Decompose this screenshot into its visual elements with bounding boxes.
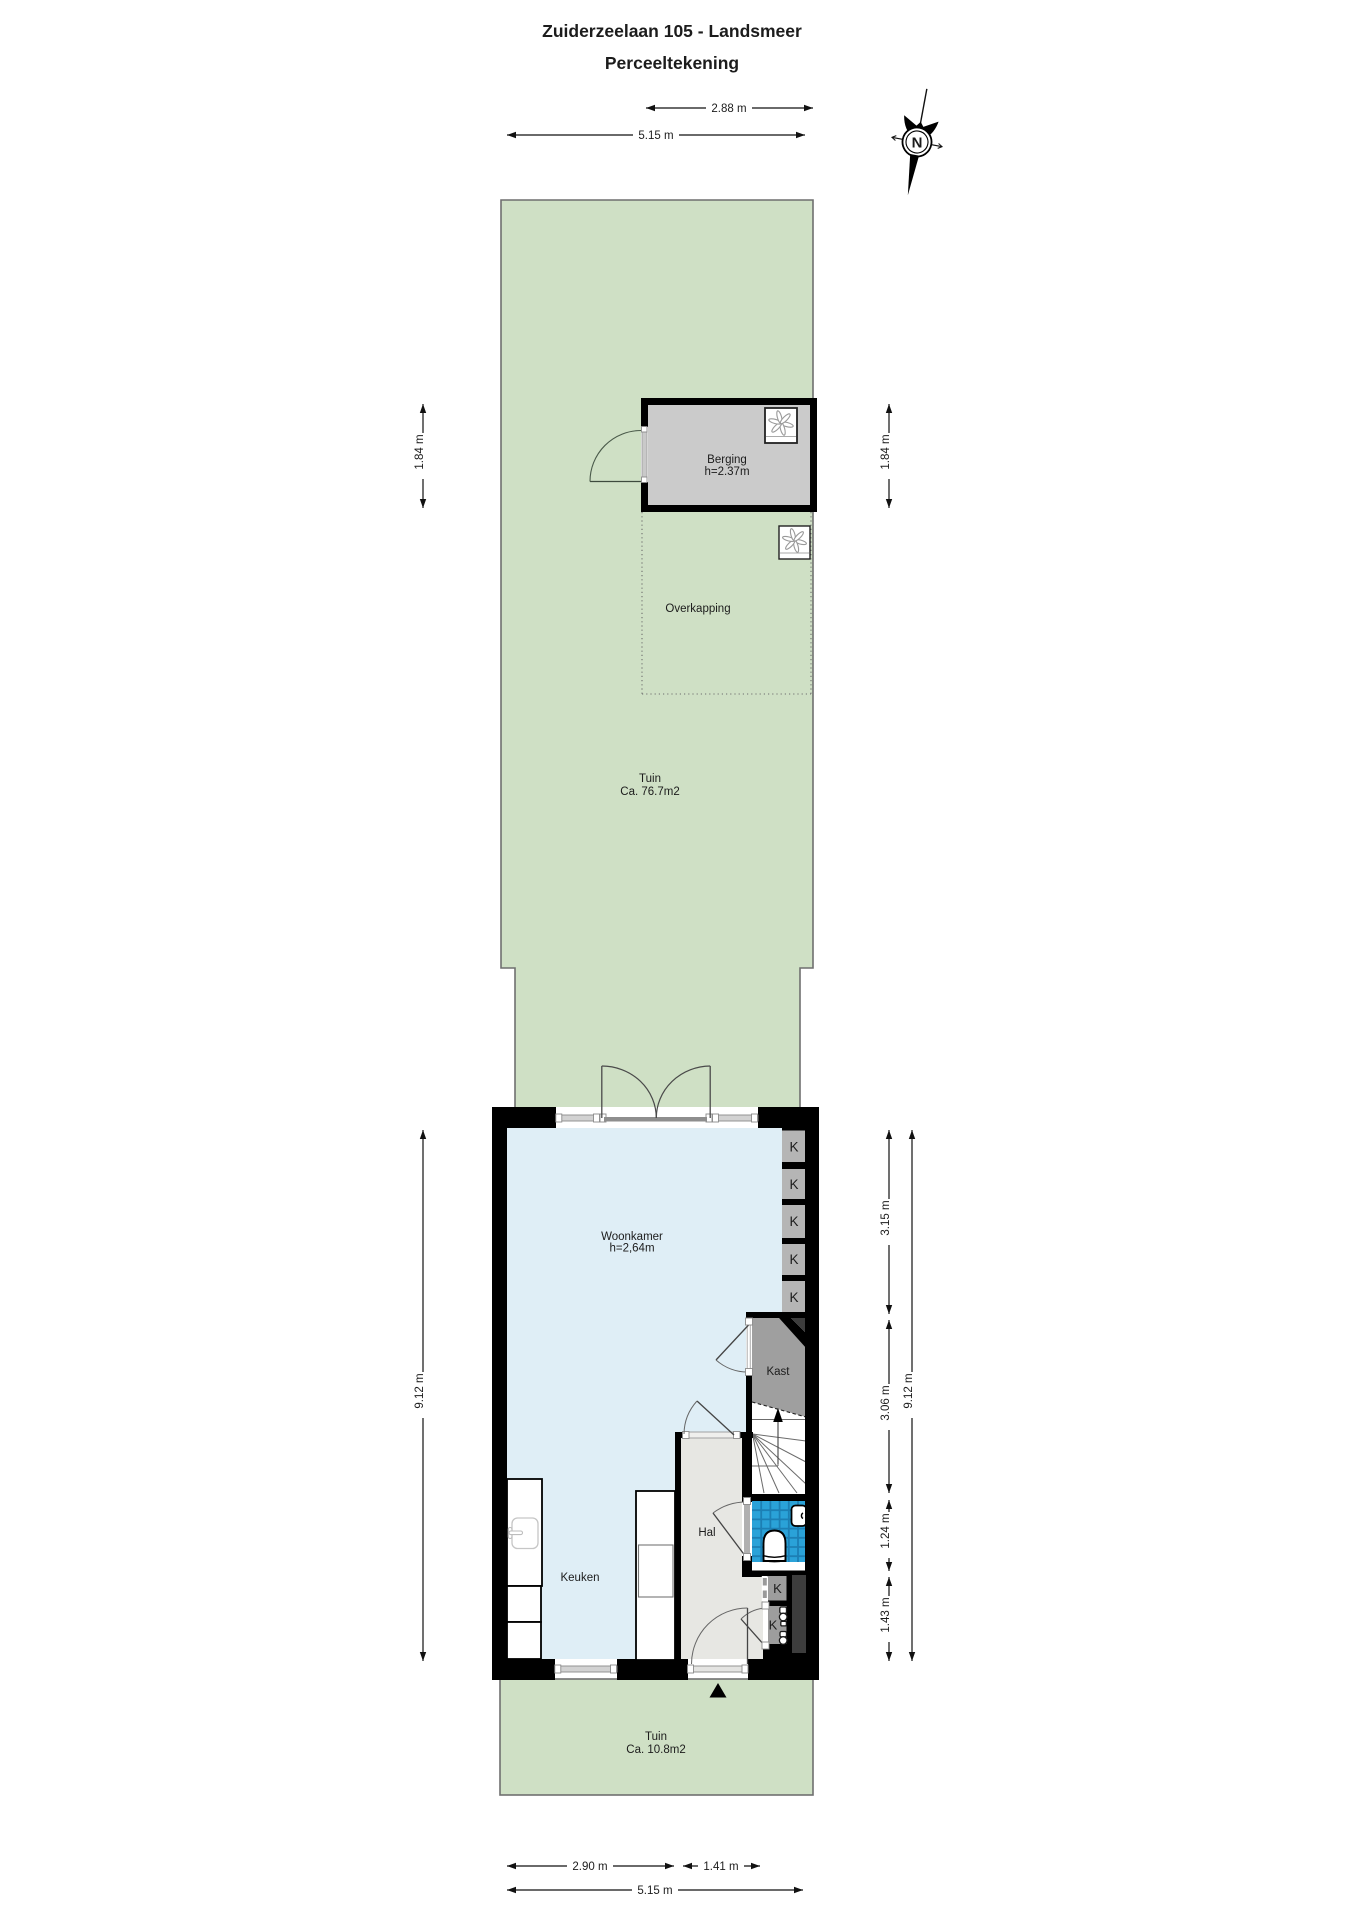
svg-text:1.84 m: 1.84 m [414, 434, 426, 469]
svg-text:3.06 m: 3.06 m [880, 1385, 892, 1420]
svg-text:Kast: Kast [766, 1366, 790, 1378]
svg-text:K: K [789, 1252, 798, 1267]
svg-text:Ca. 76.7m2: Ca. 76.7m2 [620, 786, 679, 798]
svg-text:Ca. 10.8m2: Ca. 10.8m2 [626, 1744, 685, 1756]
svg-text:Tuin: Tuin [645, 1731, 667, 1743]
svg-text:h=2,64m: h=2,64m [609, 1243, 654, 1255]
svg-text:h=2.37m: h=2.37m [704, 466, 749, 478]
svg-text:K: K [789, 1140, 798, 1155]
svg-text:3.15 m: 3.15 m [880, 1200, 892, 1235]
svg-text:Keuken: Keuken [560, 1572, 599, 1584]
svg-text:1.84 m: 1.84 m [880, 434, 892, 469]
svg-text:2.88 m: 2.88 m [711, 103, 746, 115]
svg-text:N: N [912, 135, 923, 152]
svg-text:K: K [789, 1214, 798, 1229]
svg-text:9.12 m: 9.12 m [903, 1373, 915, 1408]
svg-text:9.12 m: 9.12 m [414, 1373, 426, 1408]
svg-text:Woonkamer: Woonkamer [601, 1231, 663, 1243]
svg-text:K: K [769, 1618, 778, 1633]
svg-text:5.15 m: 5.15 m [638, 130, 673, 142]
svg-text:Tuin: Tuin [639, 773, 661, 785]
svg-text:Hal: Hal [698, 1527, 715, 1539]
svg-text:Zuiderzeelaan 105 - Landsmeer: Zuiderzeelaan 105 - Landsmeer [542, 21, 802, 41]
svg-text:Perceeltekening: Perceeltekening [605, 53, 739, 73]
svg-text:K: K [773, 1581, 782, 1596]
svg-text:K: K [789, 1290, 798, 1305]
svg-text:1.43 m: 1.43 m [880, 1597, 892, 1632]
svg-text:1.41 m: 1.41 m [703, 1861, 738, 1873]
svg-text:Berging: Berging [707, 454, 747, 466]
svg-text:2.90 m: 2.90 m [572, 1861, 607, 1873]
svg-text:5.15 m: 5.15 m [637, 1885, 672, 1897]
svg-text:Overkapping: Overkapping [665, 603, 730, 615]
svg-text:K: K [789, 1177, 798, 1192]
svg-text:1.24 m: 1.24 m [880, 1513, 892, 1548]
